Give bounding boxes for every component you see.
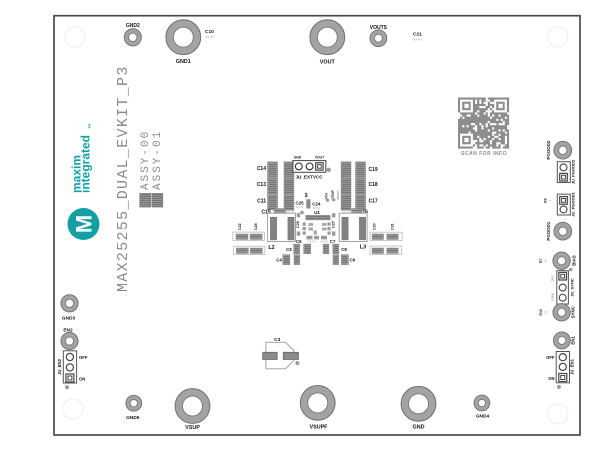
svg-text:C30: C30 <box>373 223 377 230</box>
svg-text:VSUP: VSUP <box>185 425 200 431</box>
svg-text:C28: C28 <box>254 223 258 230</box>
svg-text:C5: C5 <box>286 247 292 252</box>
svg-text:XX XX: XX XX <box>414 38 422 42</box>
svg-text:C18: C18 <box>369 182 378 188</box>
svg-text:JU_EN2: JU_EN2 <box>57 358 62 374</box>
svg-text:R6: R6 <box>544 198 548 203</box>
svg-text:XX.XX: XX.XX <box>343 209 351 213</box>
svg-text:C19: C19 <box>369 167 378 173</box>
svg-text:C14: C14 <box>257 166 266 172</box>
svg-text:U1: U1 <box>314 210 320 215</box>
svg-text:ON: ON <box>548 376 554 381</box>
svg-text:GND1: GND1 <box>176 59 191 65</box>
svg-text:JU_SYNC: JU_SYNC <box>570 278 575 297</box>
svg-text:XX.XX: XX.XX <box>287 209 295 213</box>
svg-text:C6: C6 <box>296 239 302 244</box>
svg-text:GND3: GND3 <box>62 316 76 322</box>
svg-text:ON: ON <box>79 377 85 382</box>
svg-text:GND: GND <box>294 155 302 159</box>
svg-text:SCAN FOR INFO: SCAN FOR INFO <box>461 151 507 157</box>
svg-text:(0): (0) <box>544 311 548 314</box>
svg-text:TEMP: TEMP <box>331 189 335 199</box>
svg-text:C9: C9 <box>350 257 356 262</box>
svg-text:VOUT: VOUT <box>315 155 325 159</box>
svg-text:XX.XX: XX.XX <box>320 239 328 243</box>
svg-text:(0): (0) <box>544 259 548 262</box>
svg-text:integrated: integrated <box>79 135 93 193</box>
svg-text:C17: C17 <box>369 199 378 205</box>
svg-text:C4: C4 <box>276 257 282 262</box>
svg-text:R10: R10 <box>539 309 543 316</box>
svg-text:C13: C13 <box>257 182 266 188</box>
svg-text:C3: C3 <box>274 337 280 343</box>
svg-text:L2: L2 <box>268 245 274 251</box>
svg-text:L3: L3 <box>360 244 366 250</box>
svg-text:C25: C25 <box>295 200 304 205</box>
svg-text:VOUTS: VOUTS <box>370 25 388 31</box>
svg-text:FXBN: FXBN <box>551 293 555 300</box>
svg-text:C24: C24 <box>312 201 321 206</box>
svg-text:C11: C11 <box>257 198 266 204</box>
svg-text:OFF: OFF <box>79 355 88 360</box>
svg-text:OFF: OFF <box>546 355 555 360</box>
svg-text:SYNC: SYNC <box>571 305 576 318</box>
svg-text:PGOOD2: PGOOD2 <box>546 140 551 159</box>
svg-text:EN1: EN1 <box>570 336 575 345</box>
svg-text:XX.XX: XX.XX <box>308 239 316 243</box>
svg-text:R7: R7 <box>539 258 543 263</box>
svg-text:XX XX: XX XX <box>206 35 214 39</box>
svg-text:VCA: VCA <box>324 192 328 199</box>
svg-text:C31: C31 <box>390 223 394 230</box>
svg-text:INGNT: INGNT <box>336 190 340 200</box>
svg-text:MAX25255_DUAL_EVKIT_P3: MAX25255_DUAL_EVKIT_P3 <box>115 65 132 292</box>
svg-text:GND2: GND2 <box>126 23 140 29</box>
svg-text:ASSY-01: ASSY-01 <box>152 130 164 190</box>
svg-text:BIAS: BIAS <box>572 255 577 266</box>
svg-text:PGOOD1: PGOOD1 <box>546 221 551 240</box>
svg-text:C27: C27 <box>331 221 335 228</box>
svg-text:DFLT: DFLT <box>551 274 555 281</box>
svg-text:JU_PGOOD2: JU_PGOOD2 <box>571 159 576 184</box>
svg-text:JU_EN1: JU_EN1 <box>570 358 575 374</box>
svg-text:VSUPF: VSUPF <box>310 425 329 431</box>
svg-text:C22: C22 <box>238 223 242 230</box>
svg-text:GND5: GND5 <box>126 415 140 421</box>
svg-text:XX XX: XX XX <box>296 205 304 209</box>
svg-text:VOUT: VOUT <box>320 60 336 66</box>
svg-text:™: ™ <box>88 123 95 129</box>
svg-text:JU_EXTVCC: JU_EXTVCC <box>295 174 323 179</box>
svg-text:GND: GND <box>413 425 425 431</box>
svg-text:C26: C26 <box>296 221 300 228</box>
svg-text:GND4: GND4 <box>476 414 490 420</box>
svg-text:ASSY-00: ASSY-00 <box>140 130 152 190</box>
svg-text:M: M <box>72 215 97 233</box>
svg-text:C8: C8 <box>341 247 347 252</box>
svg-text:C7: C7 <box>330 239 336 244</box>
svg-text:JU_PGOOD1: JU_PGOOD1 <box>571 191 576 216</box>
